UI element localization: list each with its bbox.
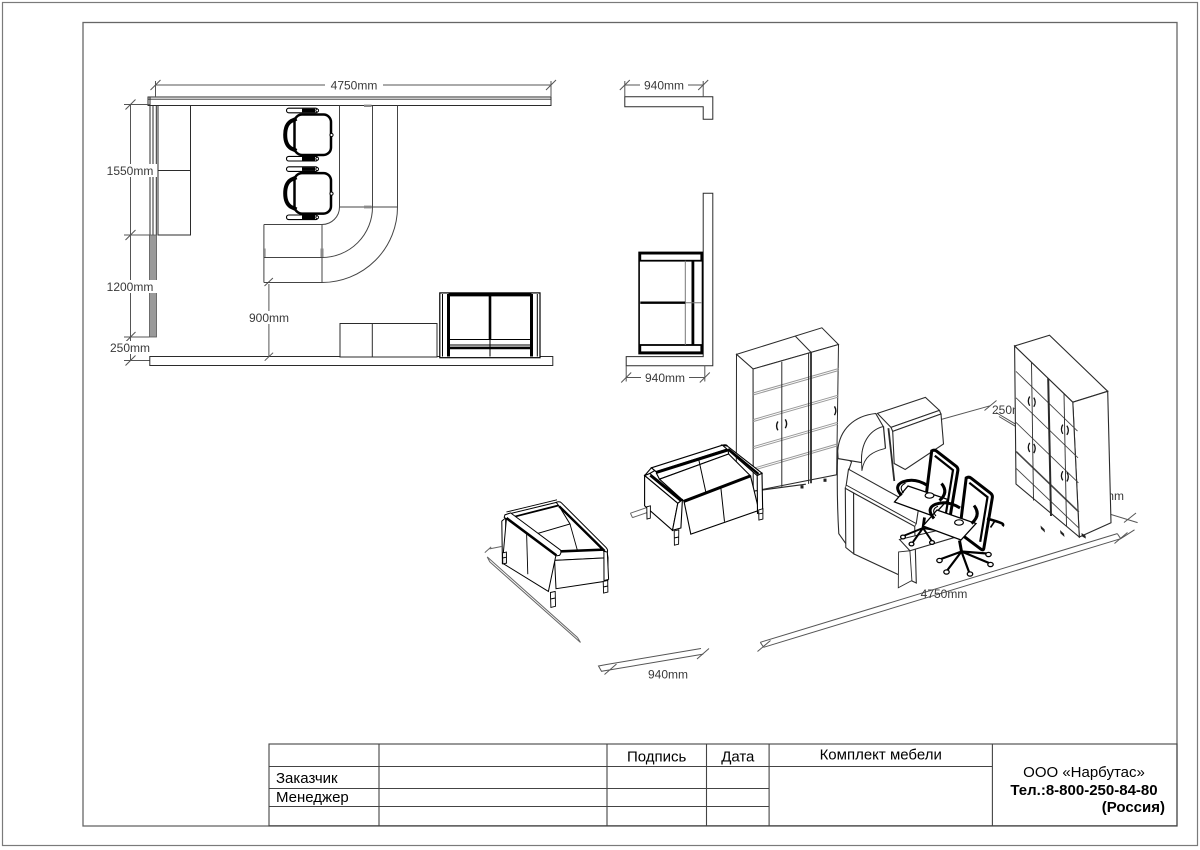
svg-text:ООО «Нарбутас»: ООО «Нарбутас» (1023, 764, 1145, 781)
svg-text:Заказчик: Заказчик (276, 770, 338, 787)
svg-text:1550mm: 1550mm (107, 164, 154, 178)
svg-text:940mm: 940mm (648, 668, 688, 682)
svg-text:4750mm: 4750mm (921, 587, 968, 601)
svg-text:4750mm: 4750mm (331, 79, 378, 93)
svg-text:(Россия): (Россия) (1102, 799, 1165, 816)
svg-text:900mm: 900mm (249, 311, 289, 325)
svg-text:940mm: 940mm (645, 371, 685, 385)
svg-text:Комплект мебели: Комплект мебели (820, 747, 942, 764)
svg-text:1200mm: 1200mm (107, 280, 154, 294)
svg-text:Подпись: Подпись (627, 749, 687, 766)
svg-text:Тел.:8-800-250-84-80: Тел.:8-800-250-84-80 (1010, 782, 1157, 799)
svg-text:940mm: 940mm (644, 79, 684, 93)
svg-text:Дата: Дата (721, 749, 755, 766)
svg-text:Менеджер: Менеджер (276, 789, 349, 806)
svg-text:250mm: 250mm (110, 341, 150, 355)
